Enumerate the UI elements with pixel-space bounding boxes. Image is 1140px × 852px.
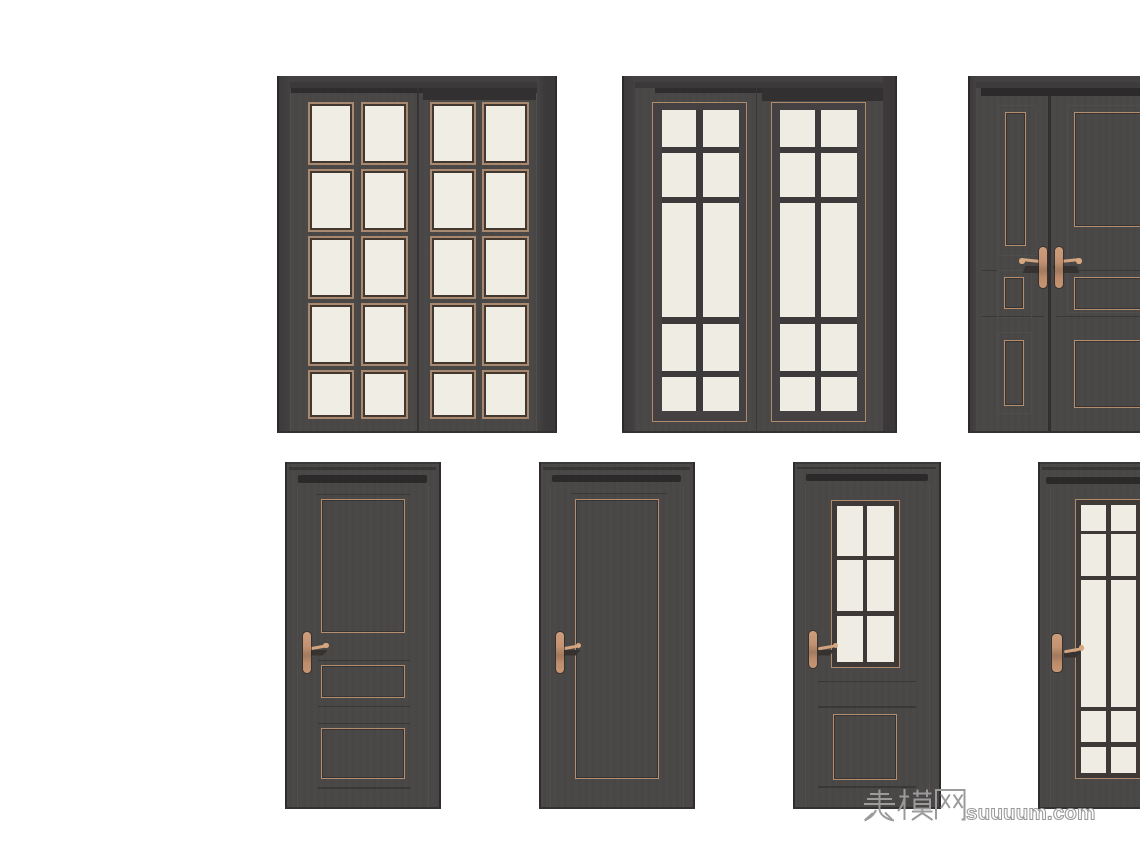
- svg-text:suuuum.com: suuuum.com: [966, 802, 1095, 825]
